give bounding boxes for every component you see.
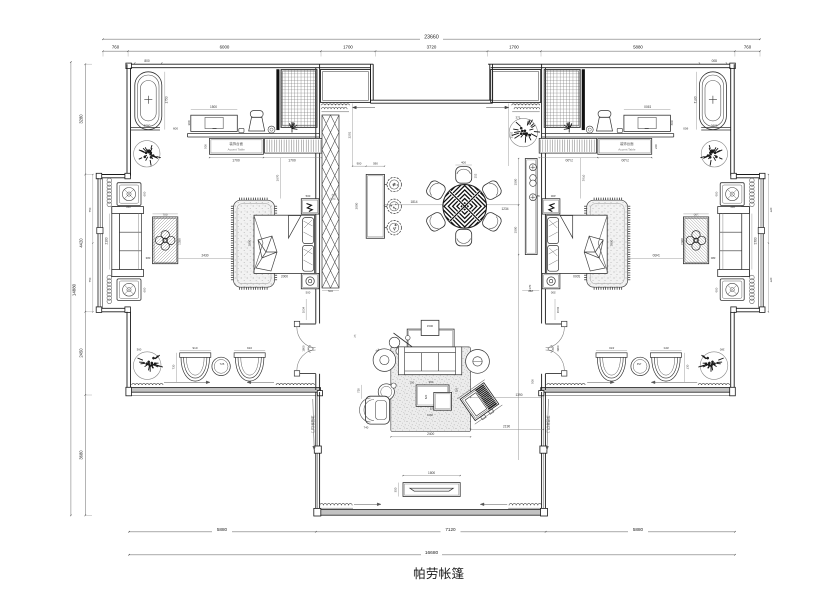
svg-text:1500: 1500 (514, 178, 518, 185)
svg-text:250: 250 (410, 381, 415, 385)
svg-text:3720: 3720 (427, 45, 437, 50)
svg-text:1700: 1700 (288, 158, 296, 162)
svg-text:910: 910 (247, 346, 252, 350)
svg-text:900: 900 (357, 161, 362, 165)
svg-text:1060: 1060 (144, 124, 151, 128)
svg-text:Accent Table: Accent Table (228, 147, 245, 151)
svg-text:700: 700 (162, 212, 167, 216)
svg-text:500: 500 (306, 194, 311, 198)
svg-text:500: 500 (328, 289, 333, 293)
svg-text:1500: 1500 (210, 105, 217, 109)
svg-text:720: 720 (357, 388, 361, 393)
svg-text:360: 360 (137, 348, 142, 352)
svg-text:600: 600 (173, 126, 178, 130)
svg-text:灯: 灯 (354, 334, 357, 338)
svg-text:2000: 2000 (355, 202, 359, 209)
svg-text:740: 740 (364, 426, 369, 430)
svg-text:2170: 2170 (528, 284, 532, 291)
svg-text:23660: 23660 (424, 34, 439, 40)
svg-text:1500: 1500 (427, 324, 434, 328)
svg-text:2000: 2000 (281, 274, 288, 278)
svg-text:1700: 1700 (343, 45, 353, 50)
svg-text:衣柜: 衣柜 (331, 193, 337, 197)
svg-text:350: 350 (455, 387, 459, 392)
svg-text:2400: 2400 (427, 432, 434, 436)
svg-text:1260: 1260 (427, 413, 433, 417)
svg-text:800: 800 (144, 59, 150, 63)
svg-text:730: 730 (172, 364, 176, 369)
svg-text:1814: 1814 (410, 200, 417, 204)
svg-text:300: 300 (187, 120, 191, 125)
svg-text:帕劳帐篷: 帕劳帐篷 (413, 566, 464, 581)
svg-text:850: 850 (126, 205, 131, 209)
svg-text:3680: 3680 (78, 450, 83, 460)
svg-text:推拉门: 推拉门 (330, 196, 338, 200)
svg-text:350: 350 (394, 487, 398, 492)
svg-text:玻璃推拉门: 玻璃推拉门 (311, 416, 316, 434)
svg-text:1350: 1350 (177, 238, 181, 245)
svg-text:380: 380 (146, 256, 151, 260)
svg-text:910: 910 (192, 346, 197, 350)
svg-text:14880: 14880 (72, 283, 77, 296)
svg-text:1034: 1034 (301, 306, 305, 313)
svg-text:2430: 2430 (201, 254, 208, 258)
svg-text:1800: 1800 (301, 345, 305, 352)
svg-text:5880: 5880 (633, 527, 644, 532)
svg-text:16680: 16680 (425, 550, 439, 556)
svg-text:1700: 1700 (232, 158, 240, 162)
svg-text:7120: 7120 (445, 527, 456, 532)
svg-text:1500: 1500 (514, 226, 518, 233)
svg-text:1390: 1390 (515, 393, 522, 397)
svg-text:750: 750 (88, 277, 92, 282)
svg-text:600: 600 (143, 191, 147, 196)
svg-text:520: 520 (430, 407, 435, 411)
svg-text:装饰台面: 装饰台面 (229, 141, 243, 146)
svg-text:725: 725 (220, 362, 225, 366)
svg-text:5880: 5880 (217, 527, 228, 532)
svg-text:400: 400 (461, 161, 466, 165)
svg-text:装饰台面: 装饰台面 (620, 141, 634, 146)
svg-text:750: 750 (88, 207, 92, 212)
svg-text:Accent Table: Accent Table (618, 147, 635, 151)
svg-text:600: 600 (143, 287, 147, 292)
svg-text:1234: 1234 (501, 207, 508, 211)
svg-text:2100: 2100 (104, 237, 108, 244)
svg-text:2190: 2190 (503, 425, 510, 429)
svg-text:4420: 4420 (78, 238, 83, 248)
svg-text:500: 500 (306, 291, 311, 295)
svg-text:2450: 2450 (78, 348, 83, 358)
svg-text:371: 371 (515, 116, 520, 120)
svg-text:760: 760 (112, 45, 120, 50)
svg-text:152: 152 (473, 173, 477, 178)
svg-text:3280: 3280 (78, 114, 83, 124)
svg-text:6000: 6000 (220, 45, 230, 50)
svg-text:620: 620 (424, 394, 428, 399)
svg-text:1750: 1750 (164, 96, 168, 103)
svg-text:1670: 1670 (276, 174, 280, 181)
svg-text:900: 900 (429, 380, 434, 384)
svg-text:1800: 1800 (428, 471, 435, 475)
svg-text:2201: 2201 (348, 131, 352, 138)
svg-text:500: 500 (531, 379, 535, 384)
svg-text:500: 500 (203, 144, 207, 149)
svg-text:1700: 1700 (509, 45, 519, 50)
svg-text:1800: 1800 (248, 239, 252, 246)
svg-text:590: 590 (373, 161, 378, 165)
svg-text:5880: 5880 (633, 45, 643, 50)
svg-text:760: 760 (744, 45, 752, 50)
